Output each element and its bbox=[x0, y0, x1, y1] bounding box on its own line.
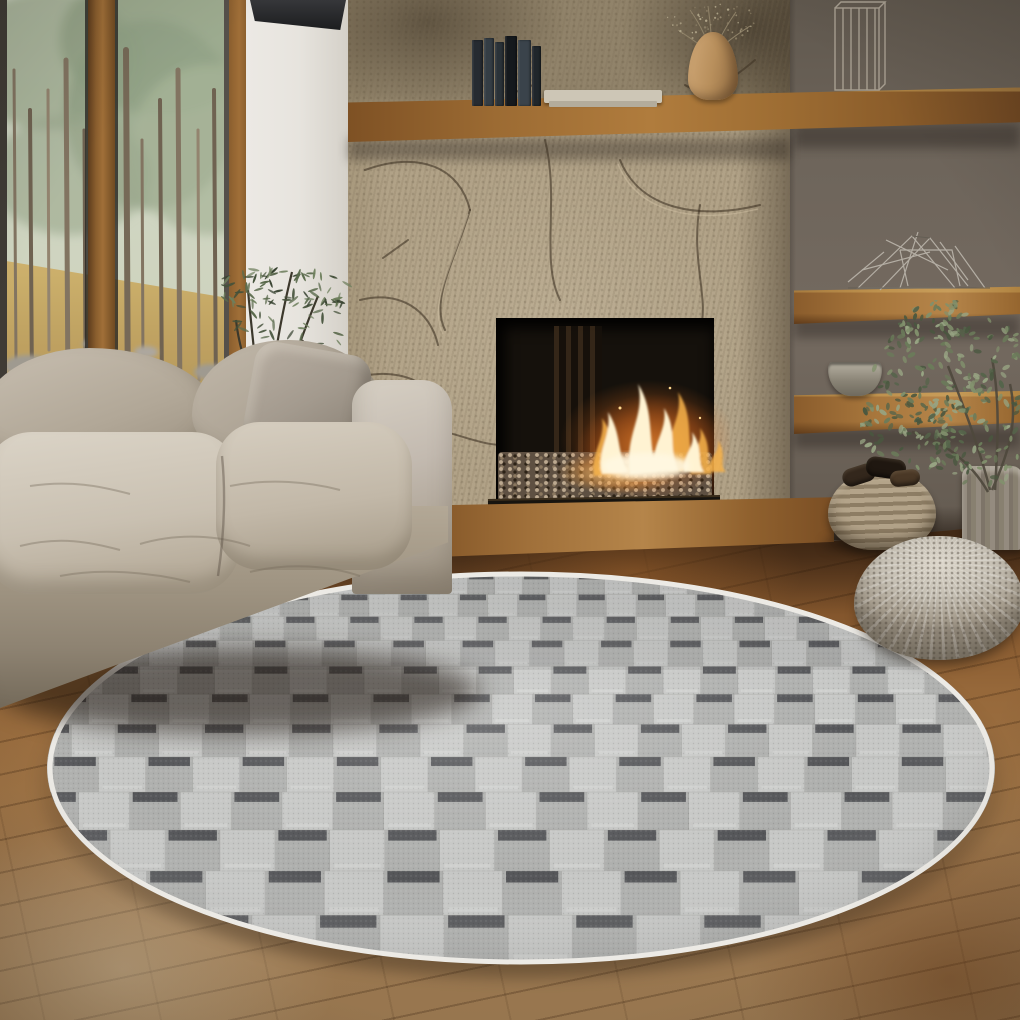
knitted-pouf bbox=[854, 536, 1020, 660]
sofa bbox=[0, 336, 452, 716]
fabric-wrinkles bbox=[0, 336, 452, 716]
living-room-scene bbox=[0, 0, 1020, 1020]
